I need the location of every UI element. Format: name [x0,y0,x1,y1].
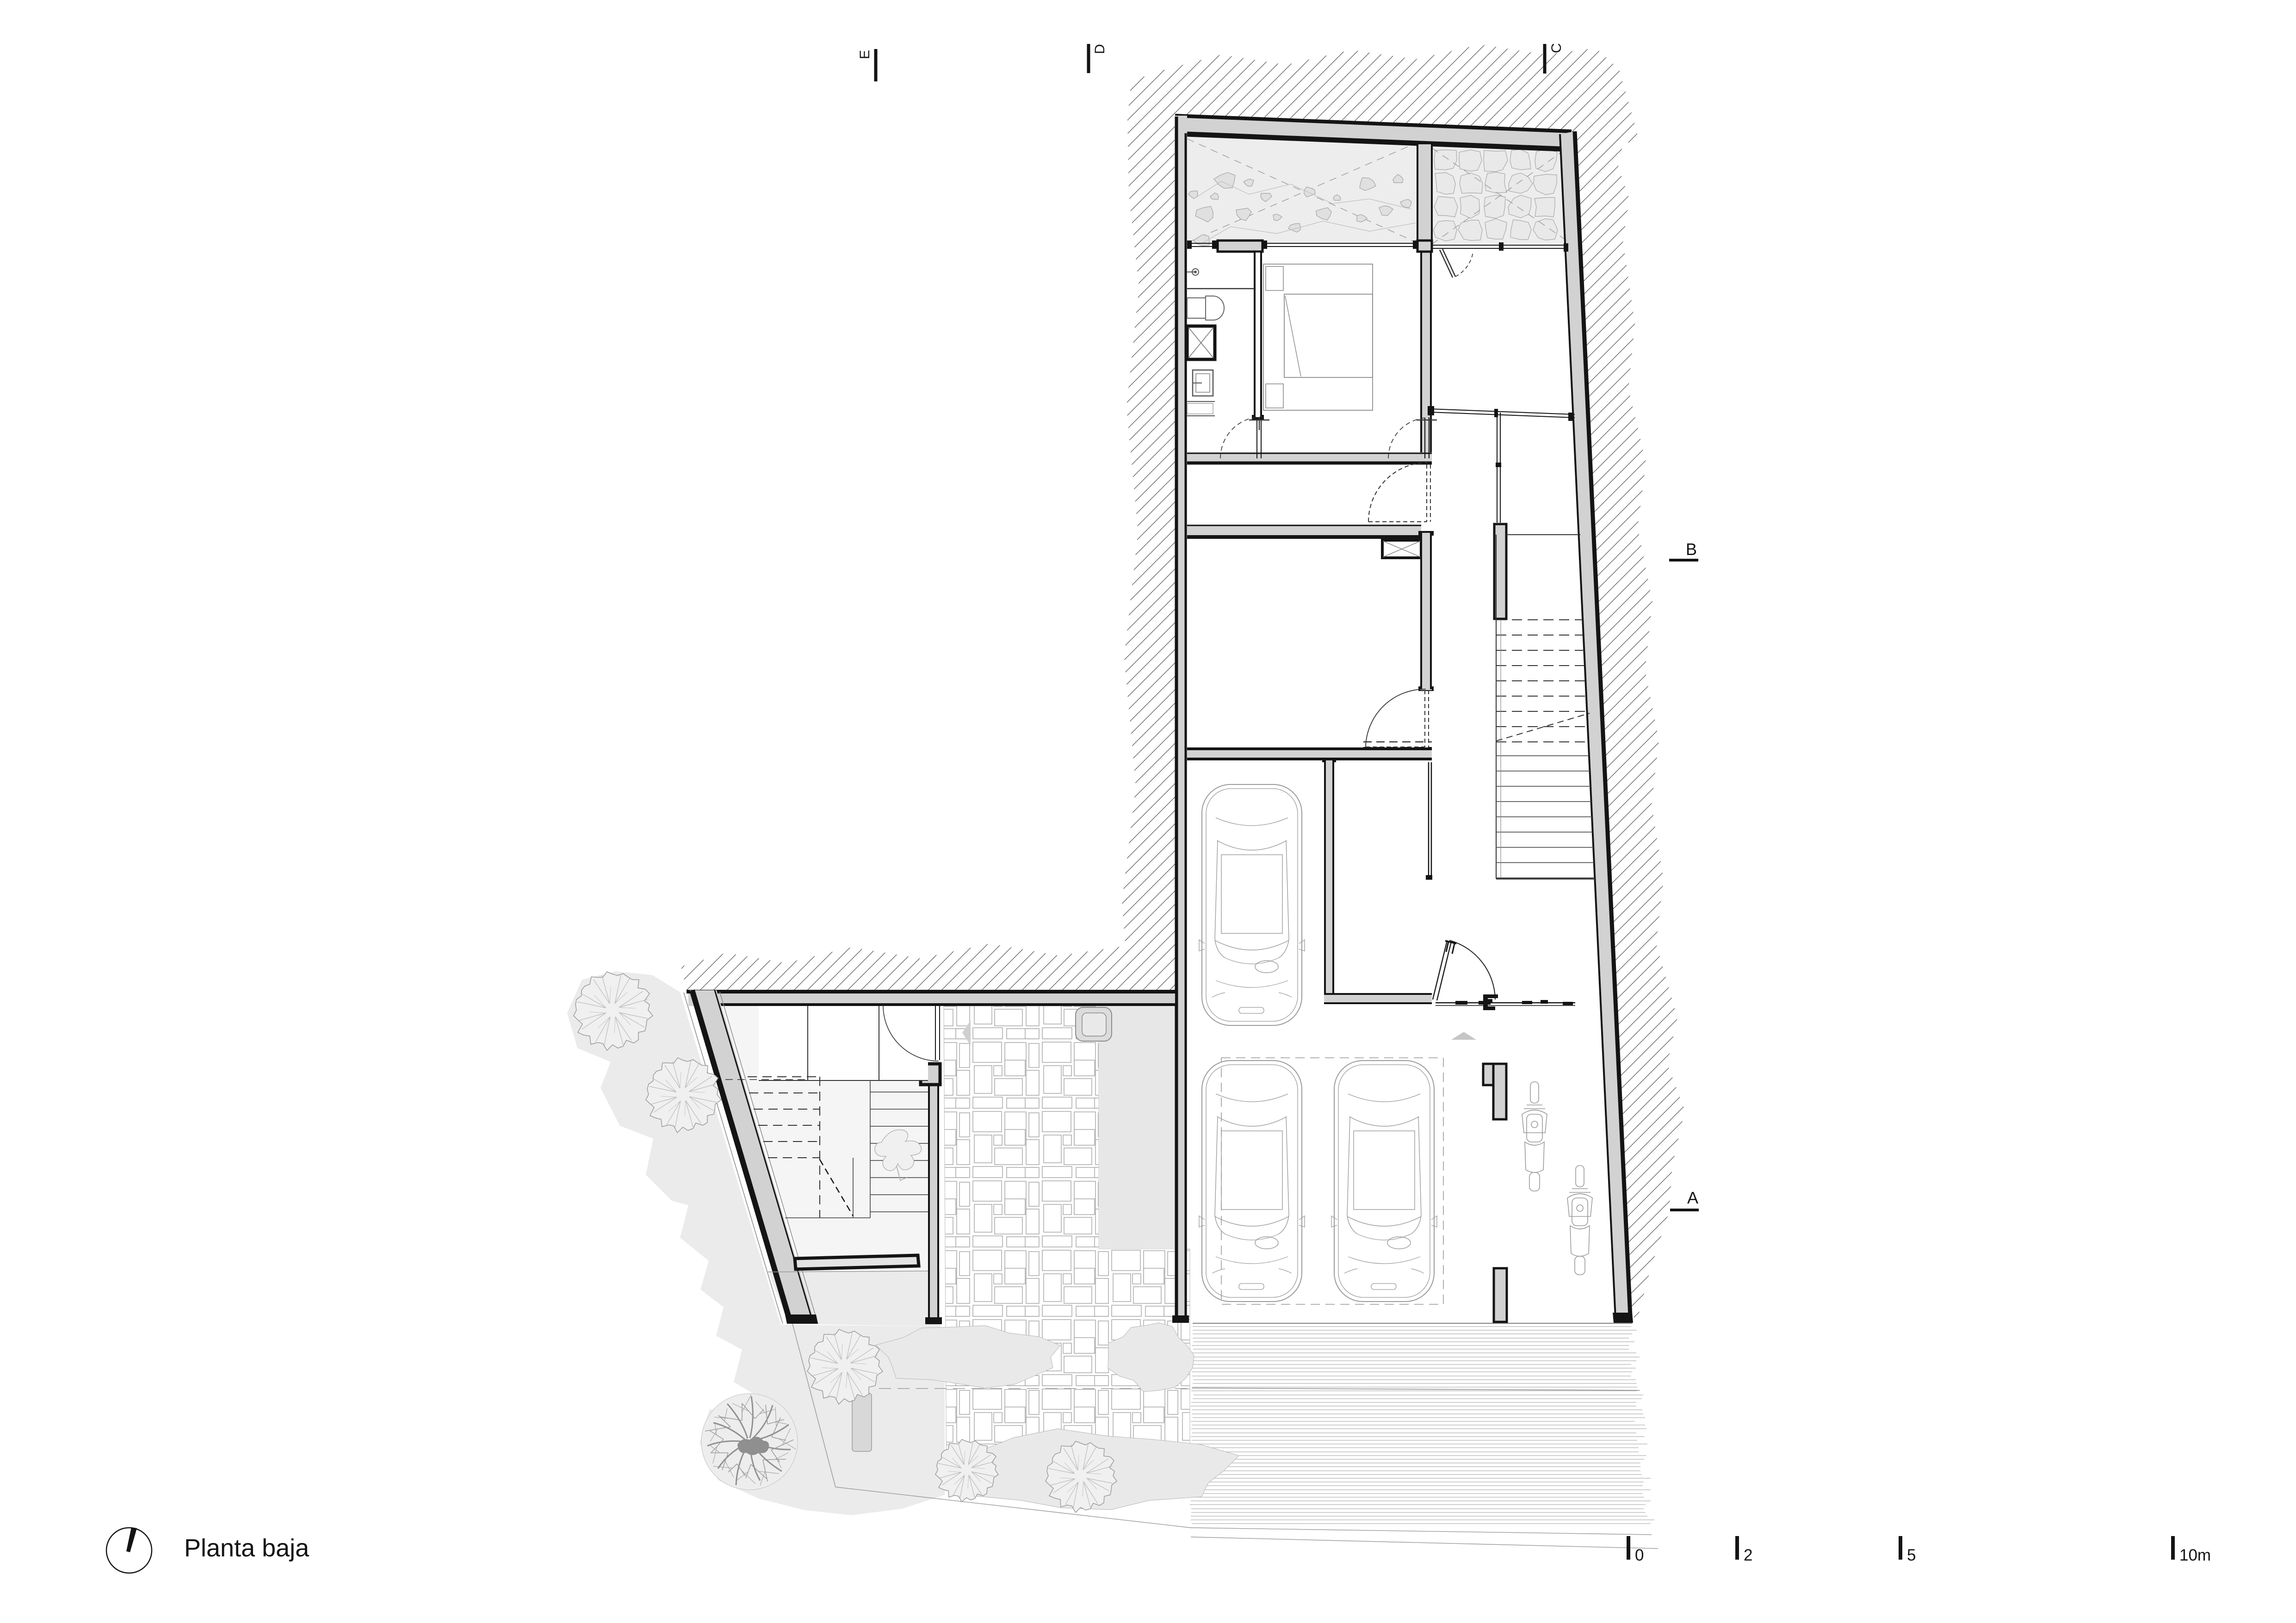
svg-text:2: 2 [1744,1546,1752,1564]
svg-text:A: A [1687,1188,1698,1207]
svg-text:10m: 10m [2179,1546,2211,1564]
svg-text:B: B [1686,540,1697,559]
svg-text:Planta baja: Planta baja [184,1534,309,1562]
svg-text:D: D [1092,44,1108,54]
svg-text:C: C [1549,43,1564,53]
svg-text:0: 0 [1635,1546,1644,1564]
svg-text:5: 5 [1907,1546,1916,1564]
svg-text:E: E [857,50,873,59]
